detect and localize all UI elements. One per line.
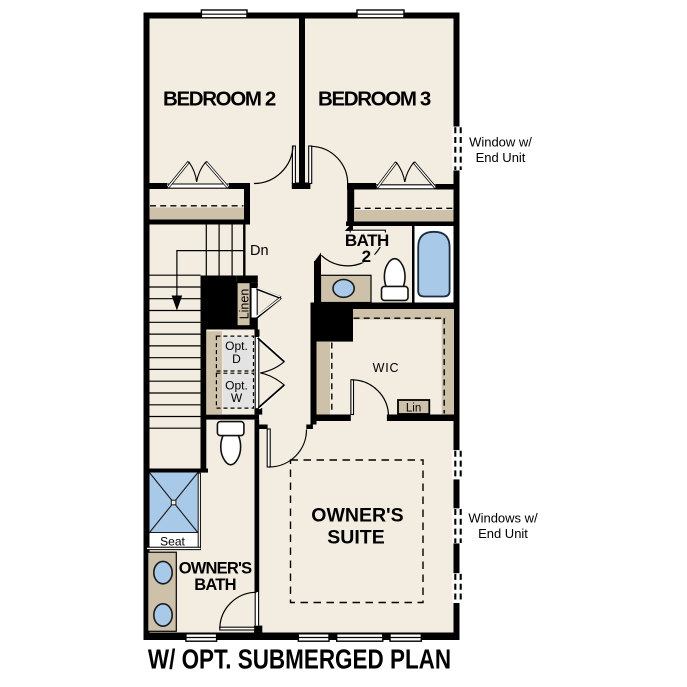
svg-text:End Unit: End Unit — [476, 150, 526, 165]
svg-text:Linen: Linen — [237, 289, 251, 320]
svg-text:BATH: BATH — [194, 576, 235, 594]
svg-text:End Unit: End Unit — [478, 526, 528, 541]
svg-text:BEDROOM 3: BEDROOM 3 — [318, 88, 431, 111]
svg-text:BEDROOM 2: BEDROOM 2 — [163, 88, 276, 111]
svg-text:W/ OPT. SUBMERGED PLAN: W/ OPT. SUBMERGED PLAN — [148, 645, 451, 676]
svg-text:WIC: WIC — [373, 361, 400, 375]
svg-text:OWNER'S: OWNER'S — [179, 560, 252, 578]
svg-text:Window w/: Window w/ — [469, 135, 532, 150]
svg-text:Lin: Lin — [406, 402, 421, 414]
svg-text:Dn: Dn — [250, 243, 269, 259]
svg-text:2: 2 — [362, 247, 371, 266]
svg-text:W: W — [231, 391, 243, 405]
svg-text:Windows w/: Windows w/ — [468, 511, 538, 526]
svg-text:OWNER'S: OWNER'S — [311, 505, 403, 527]
svg-text:Seat: Seat — [160, 535, 185, 549]
svg-text:SUITE: SUITE — [327, 526, 384, 548]
svg-text:D: D — [232, 352, 241, 366]
